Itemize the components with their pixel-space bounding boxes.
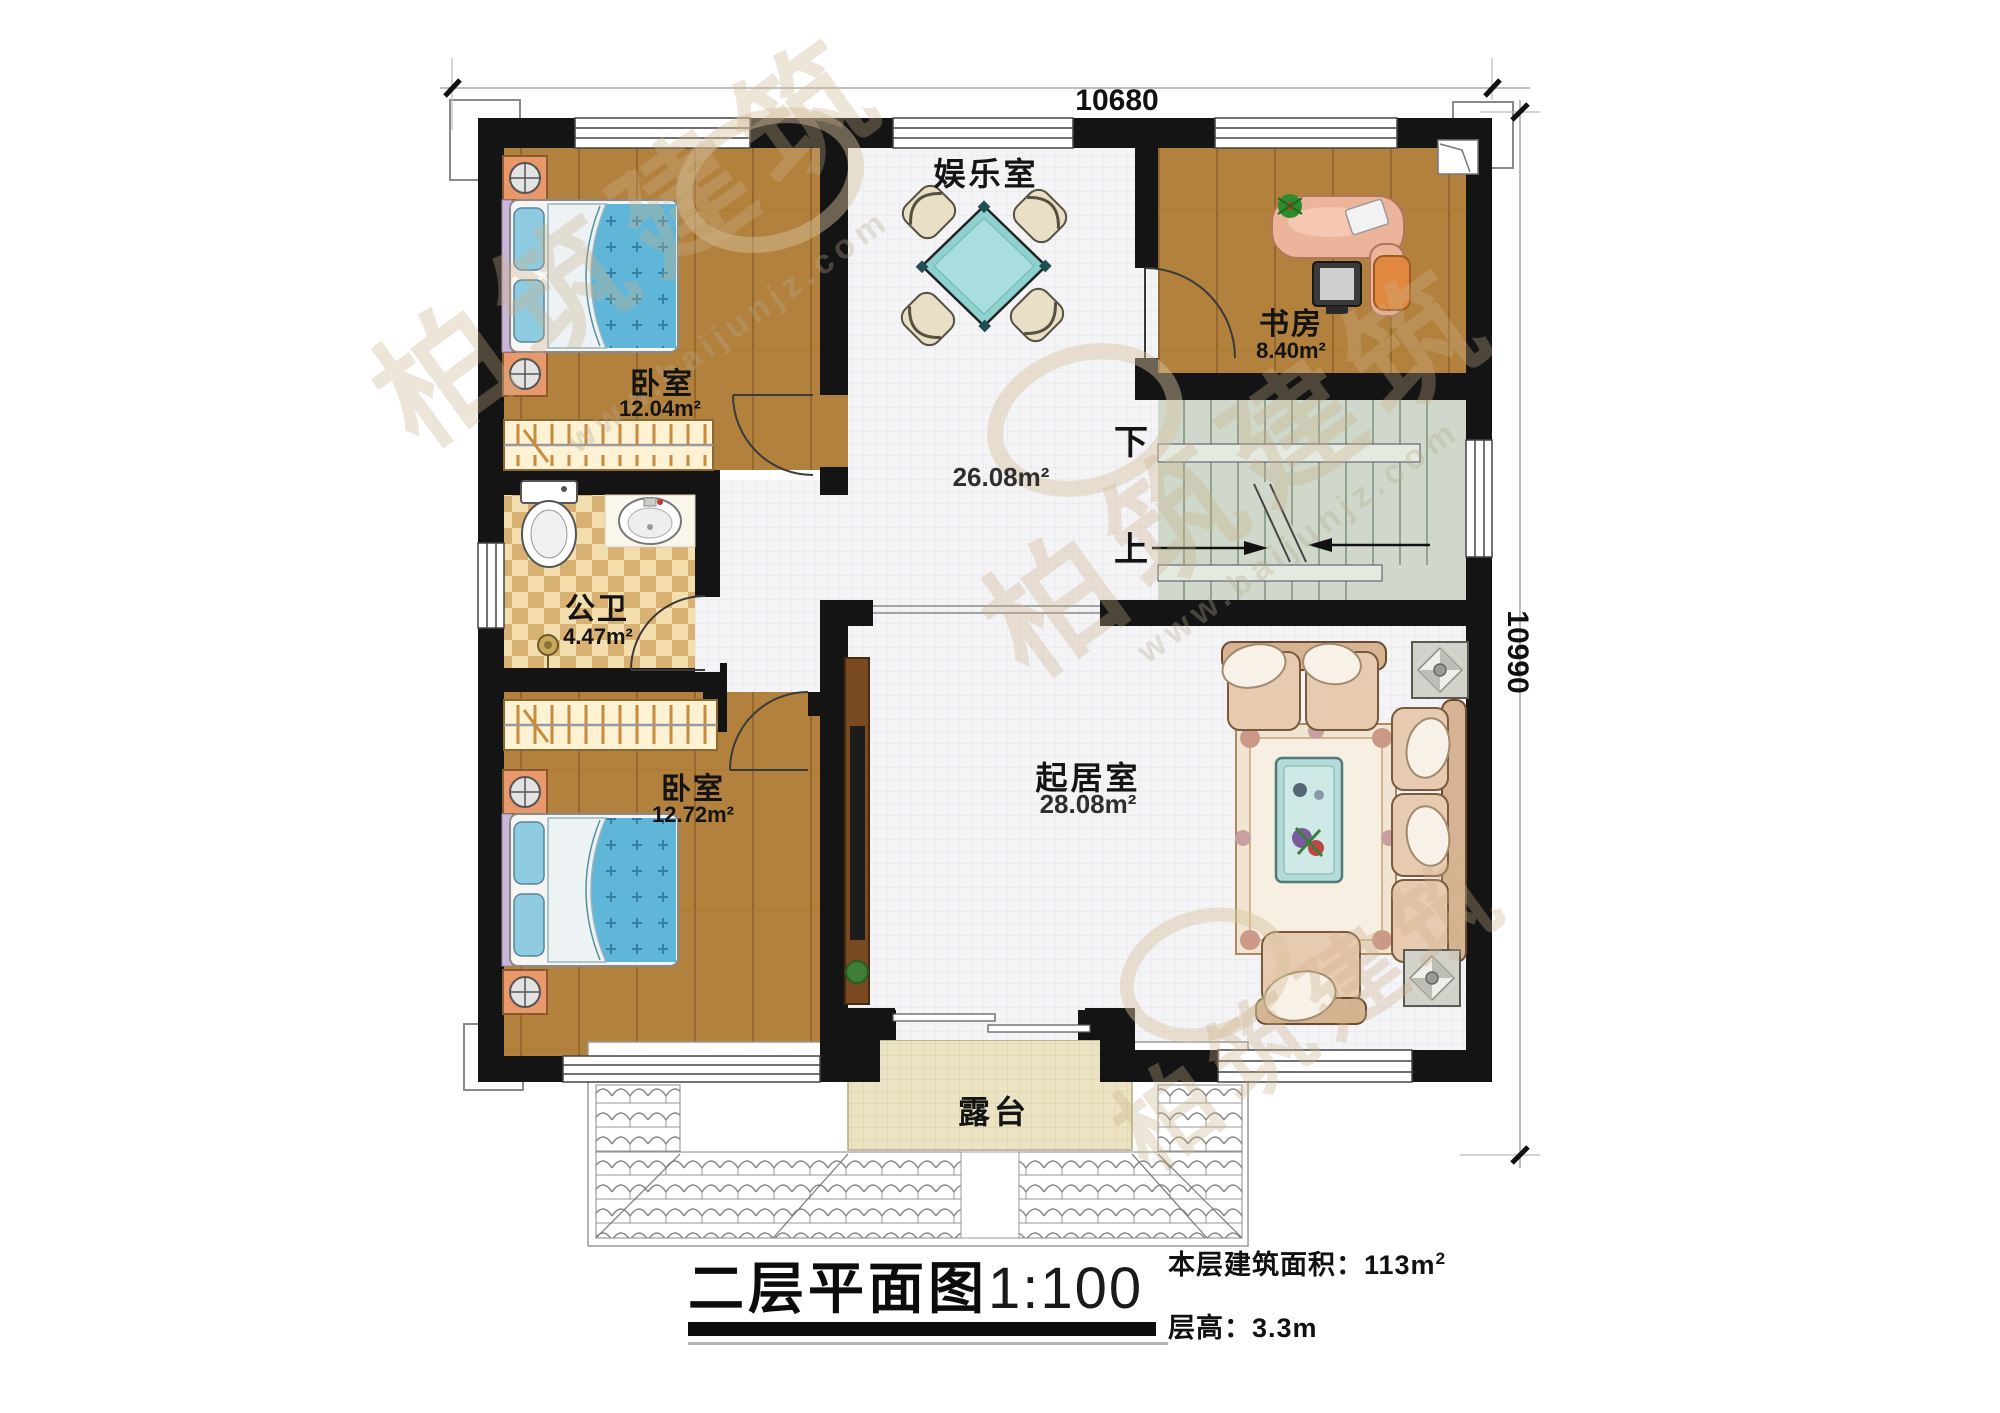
window-left-bathroom — [478, 543, 504, 628]
pillow — [514, 894, 544, 956]
wardrobe — [504, 420, 713, 470]
plant-icon — [1278, 194, 1302, 218]
pillow — [514, 822, 544, 884]
plan-scale: 1:100 — [988, 1256, 1143, 1321]
room-area-bedroom-top: 12.04m² — [619, 398, 701, 420]
stair-rail-lower — [1158, 565, 1382, 581]
desk-chair — [1374, 256, 1410, 310]
floor-area-row: 本层建筑面积：113m2 — [1168, 1250, 1446, 1279]
room-label-bedroom-bottom: 卧室 — [661, 775, 725, 805]
sofa-right — [1392, 700, 1466, 962]
window-top-study — [1215, 118, 1397, 148]
window-bottom-bedroom — [563, 1056, 820, 1082]
window-right-stairs — [1466, 440, 1492, 557]
floorplan-canvas: 柏筑建筑 www.baijunjz.com 柏筑建筑 www.baijunjz.… — [0, 0, 2000, 1413]
bed — [502, 814, 678, 966]
tv-cabinet — [845, 658, 869, 1004]
bed — [502, 200, 678, 352]
pillow — [514, 208, 544, 270]
floor-height-label: 层高： — [1168, 1313, 1252, 1343]
stair-up-label: 上 — [1114, 533, 1148, 567]
info-block: 本层建筑面积：113m2 层高：3.3m — [1168, 1250, 1446, 1342]
dimension-right: 10990 — [1502, 610, 1532, 693]
room-area-recreation: 26.08m² — [953, 464, 1050, 490]
flue-notch — [1438, 140, 1478, 174]
floor-height-value: 3.3m — [1252, 1313, 1318, 1343]
stair-rail-upper — [1158, 444, 1420, 462]
floor-area-sup: 2 — [1436, 1249, 1446, 1268]
title-underline-thin — [688, 1342, 1168, 1345]
room-area-living: 28.08m² — [1040, 791, 1137, 817]
window-top-recreation — [893, 118, 1073, 148]
floor-area-label: 本层建筑面积： — [1168, 1250, 1364, 1280]
stair-down-label: 下 — [1114, 426, 1148, 460]
plant-icon — [846, 961, 868, 983]
pillow — [514, 280, 544, 342]
side-table — [1404, 950, 1460, 1006]
coffee-table — [1276, 758, 1342, 882]
wardrobe — [504, 700, 717, 750]
game-table-set — [897, 181, 1071, 350]
floor-area-value: 113m — [1364, 1250, 1436, 1280]
room-area-bedroom-bottom: 12.72m² — [652, 804, 734, 826]
plan-title: 二层平面图 — [688, 1257, 988, 1320]
floorplan-drawing — [0, 0, 2000, 1413]
room-label-study: 书房 — [1259, 310, 1323, 340]
side-table — [1412, 642, 1468, 698]
recreation-floor — [848, 148, 1158, 600]
floor-height-row: 层高：3.3m — [1168, 1315, 1446, 1342]
room-area-bathroom: 4.47m² — [563, 626, 633, 648]
window-bottom-living — [1218, 1050, 1412, 1082]
toilet — [521, 481, 577, 567]
computer-monitor — [1313, 262, 1361, 314]
terrace-pilaster-left — [866, 1010, 896, 1040]
room-label-recreation: 娱乐室 — [933, 158, 1038, 190]
title-block: 二层平面图1:100 — [688, 1244, 1143, 1325]
title-underline — [688, 1322, 1156, 1336]
room-label-terrace: 露台 — [958, 1096, 1030, 1128]
sink — [605, 495, 695, 547]
room-label-bathroom: 公卫 — [565, 595, 629, 625]
room-area-study: 8.40m² — [1256, 340, 1326, 362]
dimension-top: 10680 — [1075, 86, 1158, 116]
